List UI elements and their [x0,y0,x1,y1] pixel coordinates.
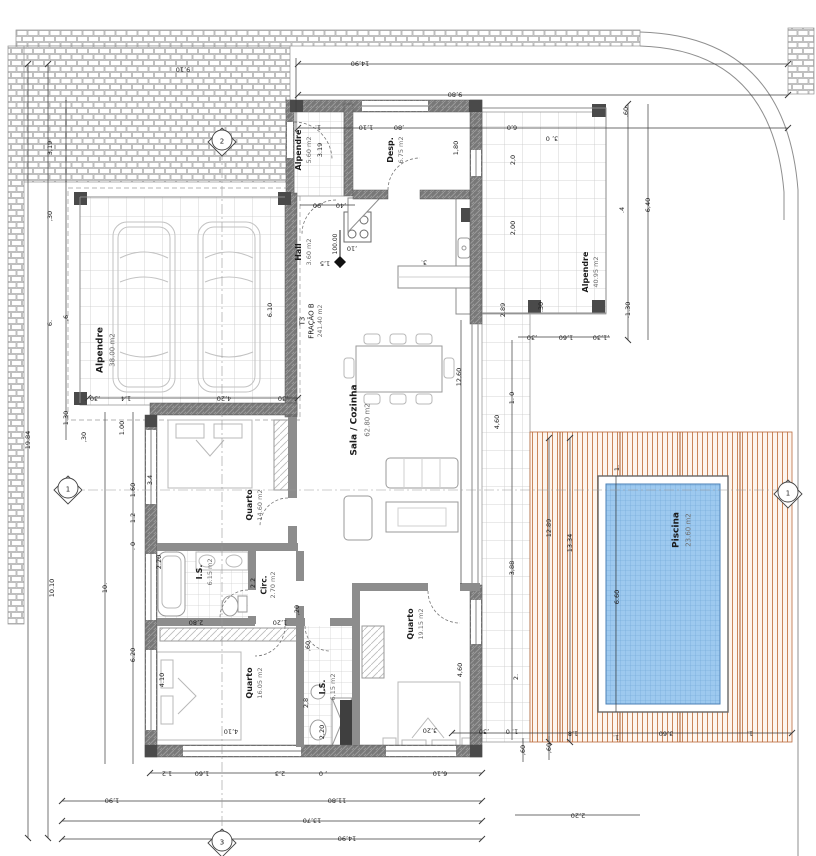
carport [68,188,300,420]
pool [598,476,728,712]
axis-marker-left [54,476,82,504]
floor-plan-drawing [0,0,816,856]
floor-plan-sheet: Alpendre38.00 m2Alpendre5.60 m23.19Desp.… [0,0,816,856]
glazing-east [472,324,478,585]
porch-north-floor [294,106,344,196]
axis-marker-bottom [208,829,236,856]
